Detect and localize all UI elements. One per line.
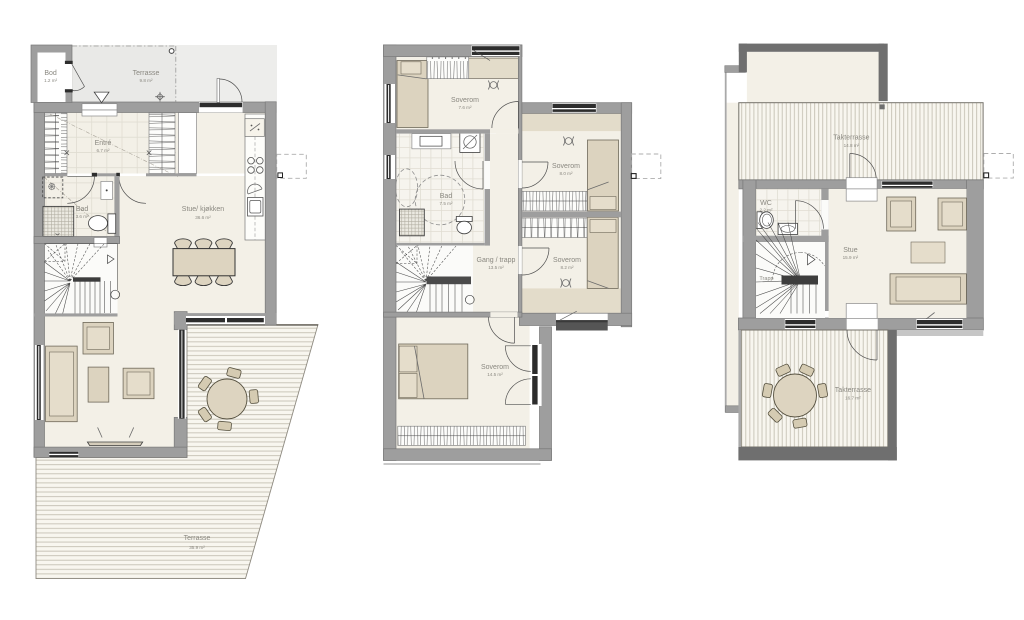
svg-text:35.9 m²: 35.9 m² (189, 545, 205, 550)
svg-text:Takterrasse: Takterrasse (835, 387, 871, 394)
svg-text:WC: WC (760, 200, 772, 207)
svg-text:16.7 m²: 16.7 m² (845, 396, 861, 401)
svg-text:36.6 m²: 36.6 m² (195, 215, 211, 220)
svg-text:15.9 m²: 15.9 m² (843, 255, 859, 260)
svg-text:Trapp: Trapp (759, 276, 773, 282)
svg-text:8.2 m²: 8.2 m² (560, 265, 573, 270)
svg-text:3.6 m²: 3.6 m² (76, 214, 89, 219)
svg-text:Soverom: Soverom (451, 97, 479, 104)
svg-text:Soverom: Soverom (553, 257, 581, 264)
svg-text:Entré: Entré (95, 140, 112, 147)
svg-text:7.5 m²: 7.5 m² (439, 201, 452, 206)
svg-text:Takterrasse: Takterrasse (833, 135, 869, 142)
svg-text:Bad: Bad (440, 193, 453, 200)
svg-text:8.0 m²: 8.0 m² (559, 171, 572, 176)
svg-text:Soverom: Soverom (481, 364, 509, 371)
svg-text:14.8 m²: 14.8 m² (844, 143, 860, 148)
svg-text:Terrasse: Terrasse (184, 535, 211, 542)
svg-text:6.7 m²: 6.7 m² (96, 148, 109, 153)
svg-text:13.5 m²: 13.5 m² (488, 265, 504, 270)
svg-text:1.2 m²: 1.2 m² (44, 78, 57, 83)
svg-text:Terrasse: Terrasse (133, 70, 160, 77)
svg-text:Bad: Bad (76, 206, 89, 213)
svg-text:2.2 m²: 2.2 m² (759, 208, 772, 213)
svg-text:Bod: Bod (44, 70, 57, 77)
svg-text:Gang / trapp: Gang / trapp (477, 257, 516, 264)
svg-text:9.8 m²: 9.8 m² (139, 78, 152, 83)
svg-text:7.6 m²: 7.6 m² (458, 105, 471, 110)
svg-text:Soverom: Soverom (552, 163, 580, 170)
svg-text:Stue/ kjøkken: Stue/ kjøkken (182, 206, 225, 213)
svg-text:Stue: Stue (843, 247, 858, 254)
svg-text:14.5 m²: 14.5 m² (487, 372, 503, 377)
